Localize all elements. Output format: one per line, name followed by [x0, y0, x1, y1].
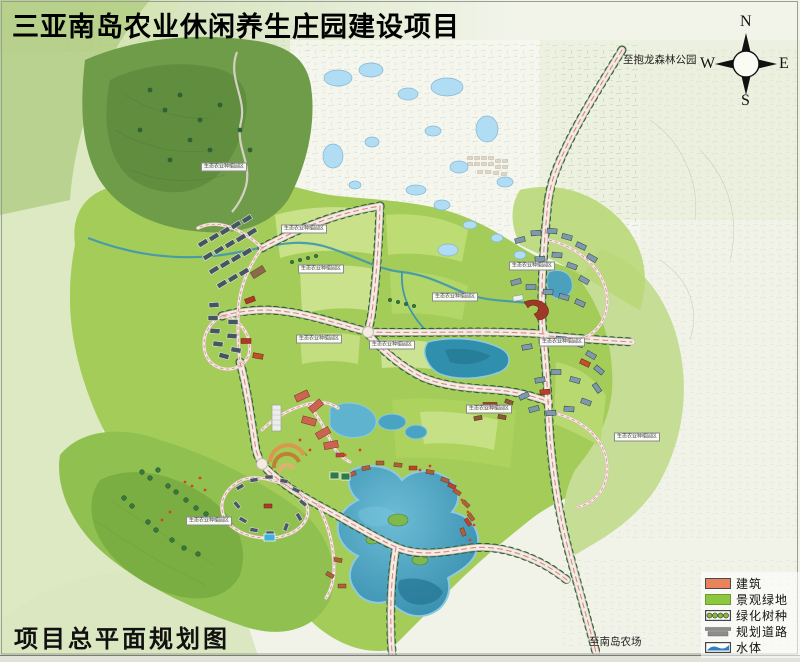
- area-label-chip: 生态农业种植园区: [466, 405, 512, 414]
- area-label-chip: 生态农业种植园区: [539, 338, 585, 347]
- area-label-chip: 生态农业种植园区: [296, 335, 342, 344]
- area-label-chip: 生态农业种植园区: [432, 293, 478, 302]
- legend-label: 水体: [736, 639, 762, 656]
- trees-swatch: [705, 610, 731, 621]
- area-label-chip: 生态农业种植园区: [201, 163, 247, 172]
- building-swatch: [705, 578, 731, 589]
- legend-row-trees: 绿化树种: [705, 607, 800, 623]
- legend-label: 规划道路: [736, 623, 788, 640]
- compass-north-label: N: [740, 13, 752, 31]
- legend-row-road: 规划道路: [705, 623, 800, 639]
- legend-row-water: 水体: [705, 639, 800, 655]
- legend-label: 绿化树种: [736, 607, 788, 624]
- plan-caption: 项目总平面规划图: [14, 619, 230, 654]
- water-swatch: [705, 642, 731, 653]
- site-plan-map: [0, 0, 800, 662]
- compass-east-label: E: [779, 55, 789, 73]
- area-label-chip: 生态农业种植园区: [186, 517, 232, 526]
- legend-panel: 建筑 景观绿地 绿化树种 规划道路 水体: [701, 572, 800, 658]
- road-swatch: [705, 626, 731, 637]
- compass-south-label: S: [741, 92, 750, 110]
- area-label-chip: 生态农业种植园区: [614, 433, 660, 442]
- area-label-chip: 生态农业种植园区: [509, 262, 555, 271]
- page-title: 三亚南岛农业休闲养生庄园建设项目: [12, 5, 460, 44]
- legend-row-building: 建筑: [705, 575, 800, 591]
- legend-row-green-space: 景观绿地: [705, 591, 800, 607]
- legend-label: 景观绿地: [736, 591, 788, 608]
- road-label-nandao-farm: 至南岛农场: [589, 634, 642, 649]
- compass-west-label: W: [700, 55, 715, 73]
- road-label-baolong-forest-park: 至抱龙森林公园: [623, 52, 697, 67]
- green-space-swatch: [705, 594, 731, 605]
- area-label-chip: 生态农业种植园区: [369, 341, 415, 350]
- area-label-chip: 生态农业种植园区: [298, 265, 344, 274]
- site-plan-page: 三亚南岛农业休闲养生庄园建设项目 项目总平面规划图 至抱龙森林公园 至南岛农场 …: [0, 0, 800, 662]
- area-label-chip: 生态农业种植园区: [281, 225, 327, 234]
- legend-label: 建筑: [736, 575, 762, 592]
